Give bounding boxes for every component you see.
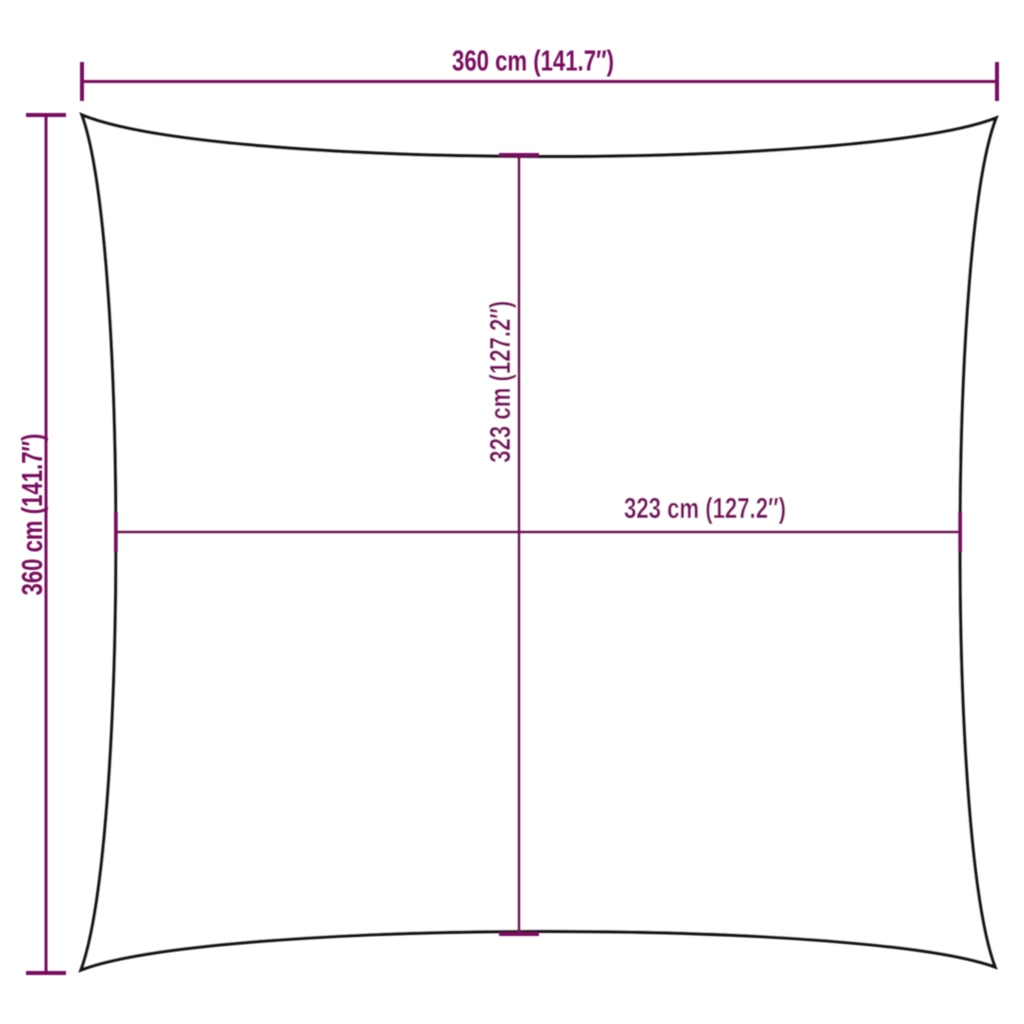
svg-text:323 cm (127.2″): 323 cm (127.2″) bbox=[624, 493, 786, 525]
svg-text:360 cm (141.7″): 360 cm (141.7″) bbox=[452, 46, 614, 78]
svg-text:323 cm (127.2″): 323 cm (127.2″) bbox=[485, 301, 517, 463]
svg-text:360 cm (141.7″): 360 cm (141.7″) bbox=[17, 434, 49, 596]
